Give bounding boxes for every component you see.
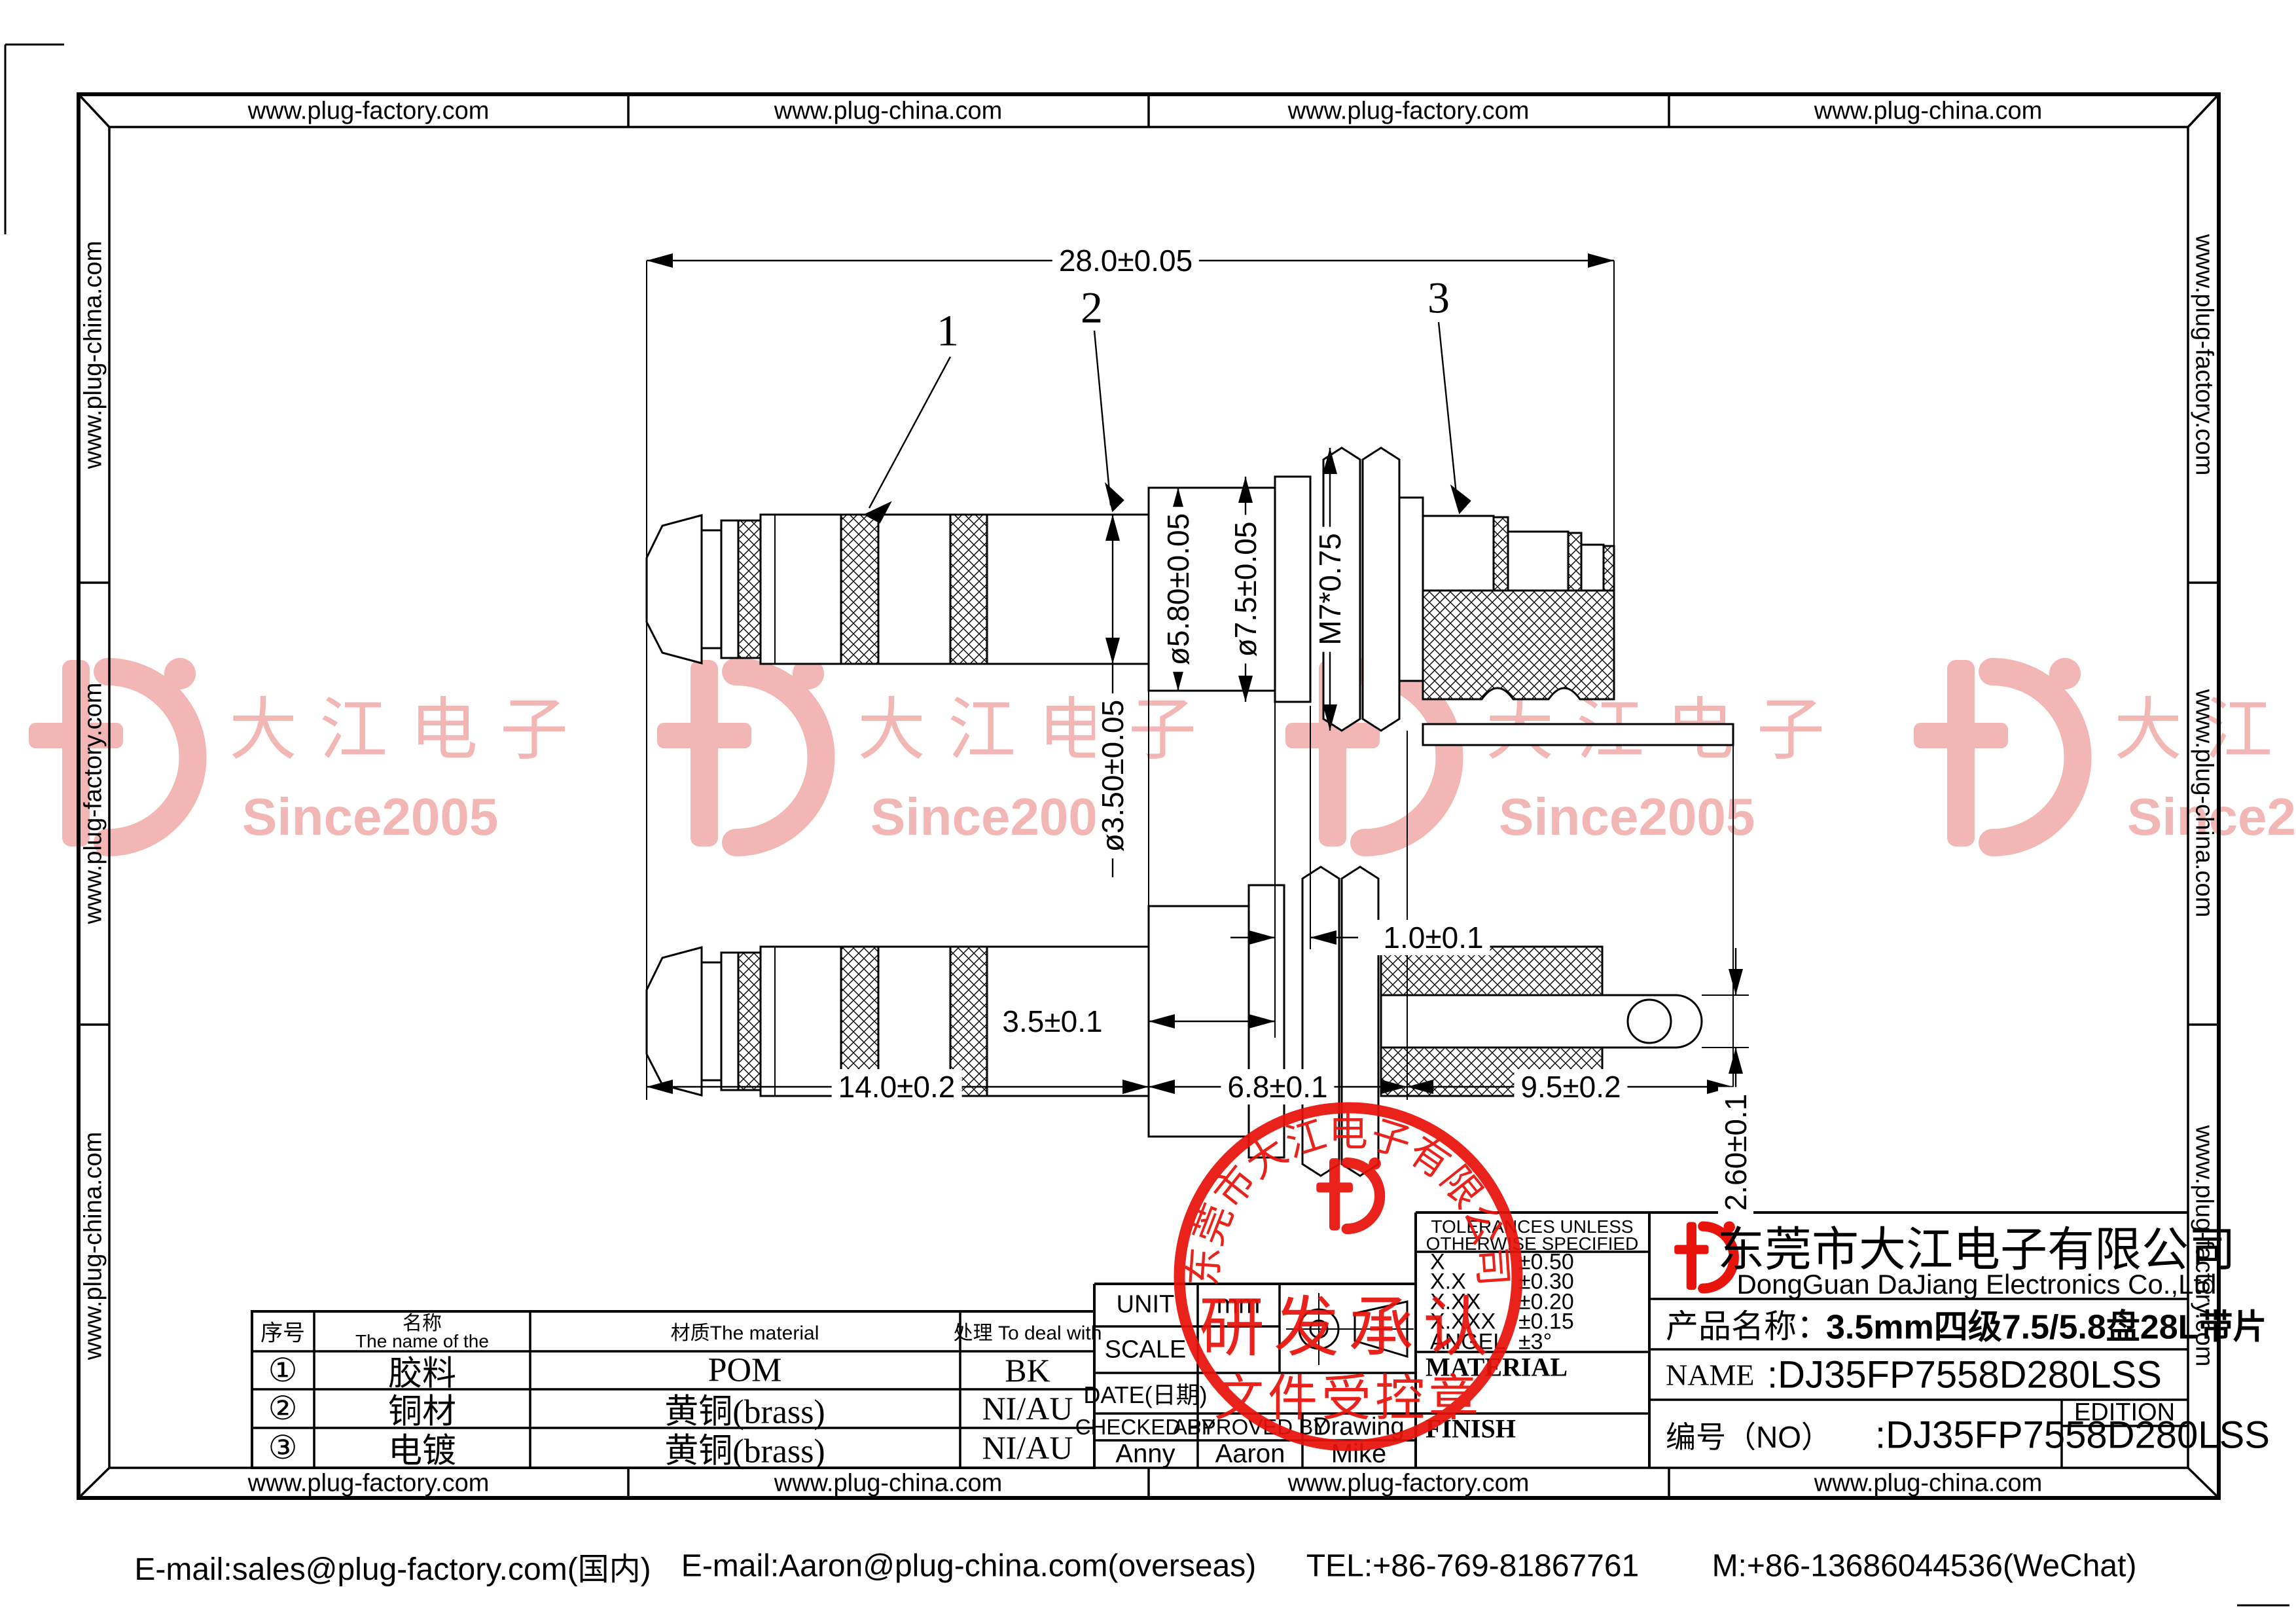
- stamp-arc-text: 东莞市大江电子有限公司: [1181, 1110, 1516, 1288]
- stamp-line2: 文件受控章: [1214, 1369, 1482, 1427]
- dj-logo-icon: [1316, 1158, 1381, 1230]
- stamp-line1: 研发承认: [1199, 1289, 1498, 1366]
- engineering-drawing-sheet: 大江电子 Since2005 大江电子 Since2005 大江电子 Since…: [0, 0, 2296, 1623]
- approval-stamp: 东莞市大江电子有限公司 研发承认 文件受控章: [0, 0, 2296, 1623]
